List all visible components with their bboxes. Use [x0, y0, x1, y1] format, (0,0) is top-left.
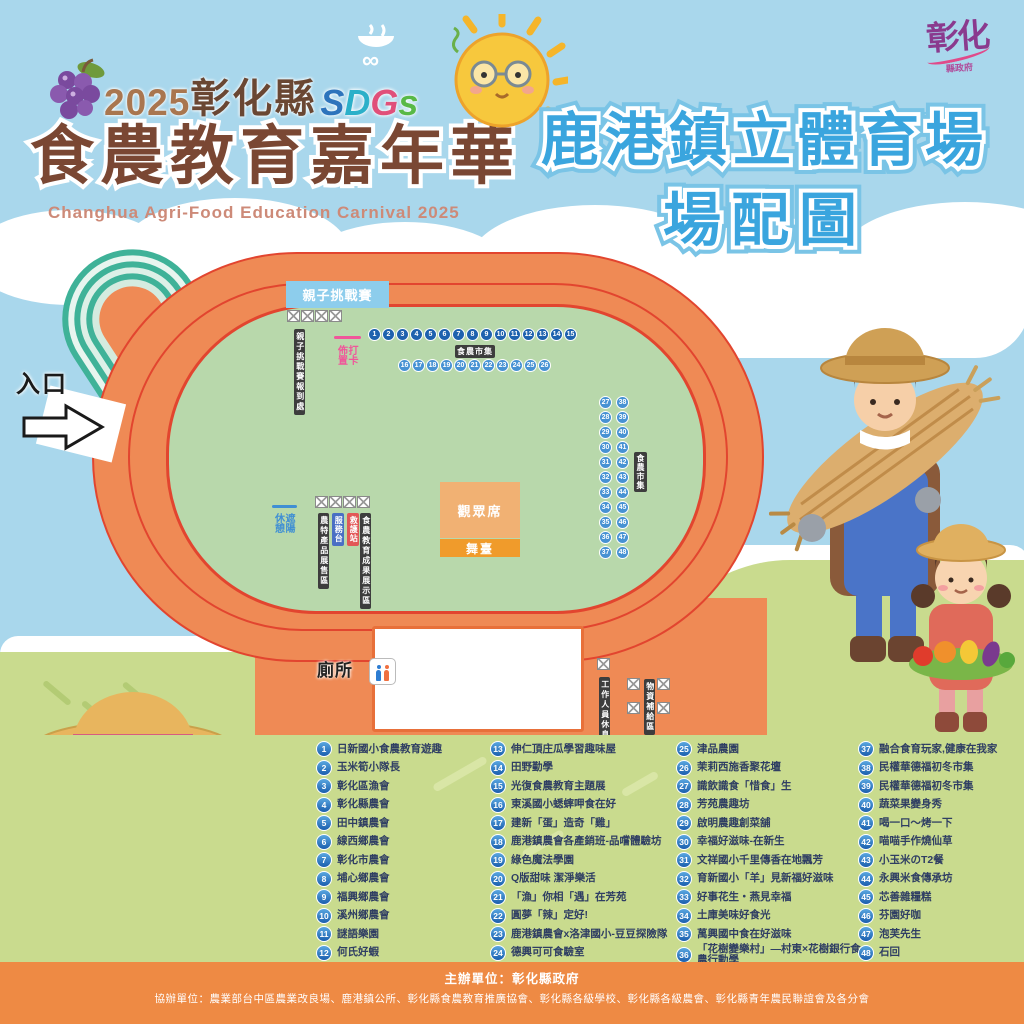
- legend-item-number: 29: [676, 815, 692, 831]
- booth-number: 18: [426, 359, 439, 372]
- legend-item: 14 田野勤學: [490, 759, 676, 778]
- booth-number: 21: [468, 359, 481, 372]
- booth-number: 19: [440, 359, 453, 372]
- booth-number: 31: [599, 456, 612, 469]
- legend-item-label: 溪州鄉農會: [337, 910, 390, 922]
- supply-area-label: 物資補給區: [644, 679, 655, 735]
- legend-item: 6 線西鄉農會: [316, 833, 488, 852]
- legend-item-label: 鹿港鎮農會x洛津國小-豆豆探險隊: [511, 929, 667, 941]
- legend-item-label: 土庫美味好食光: [697, 910, 771, 922]
- legend-item-label: 線西鄉農會: [337, 836, 390, 848]
- legend-item-number: 34: [676, 908, 692, 924]
- legend-item: 22 圓夢「辣」定好!: [490, 907, 676, 926]
- venue-title: 鹿港鎮立體育場 鹿港鎮立體育場 場配圖 場配圖: [505, 92, 1024, 272]
- legend-item: 48 石回: [858, 944, 1020, 963]
- legend-item-number: 6: [316, 834, 332, 850]
- tent-icon: [329, 496, 342, 508]
- legend-item: 45 芯善雜糧糕: [858, 888, 1020, 907]
- booth-number: 15: [564, 328, 577, 341]
- legend-item-number: 46: [858, 908, 874, 924]
- legend-item-label: 啟明農趣創菜舖: [697, 818, 771, 830]
- legend-column-2: 13 伸仁頂庄瓜學習趣味屋 14 田野勤學 15 光復食農教育主題展 16 東溪…: [490, 740, 676, 962]
- legend-item: 19 綠色魔法學園: [490, 851, 676, 870]
- legend-item-number: 23: [490, 926, 506, 942]
- legend-item-number: 12: [316, 945, 332, 961]
- legend-item: 11 謎語樂園: [316, 925, 488, 944]
- legend-item-number: 39: [858, 778, 874, 794]
- legend-item: 4 彰化縣農會: [316, 796, 488, 815]
- legend-item-number: 48: [858, 945, 874, 961]
- legend-item-number: 3: [316, 778, 332, 794]
- legend-item: 18 鹿港鎮農會各產銷班-品嚐體驗坊: [490, 833, 676, 852]
- tent-icon: [357, 496, 370, 508]
- legend-item-number: 40: [858, 797, 874, 813]
- booth-number: 43: [616, 471, 629, 484]
- booth-number: 37: [599, 546, 612, 559]
- legend-item-number: 27: [676, 778, 692, 794]
- legend-item: 10 溪州鄉農會: [316, 907, 488, 926]
- legend-item: 38 民權華德福初冬市集: [858, 759, 1020, 778]
- legend-item: 17 建新「蛋」造奇「雞」: [490, 814, 676, 833]
- legend-item: 43 小玉米のT2餐: [858, 851, 1020, 870]
- booth-number: 44: [616, 486, 629, 499]
- legend-item: 40 蔬菜果變身秀: [858, 796, 1020, 815]
- legend-item-number: 43: [858, 852, 874, 868]
- booth-number: 6: [438, 328, 451, 341]
- tent-icon: [627, 702, 640, 714]
- spectator-seating: 觀眾席: [440, 482, 520, 538]
- legend-item: 29 啟明農趣創菜舖: [676, 814, 862, 833]
- legend-column-3: 25 津品農園 26 茉莉西施香聚花壇 27 識飲識食「惜食」生 28 芳苑農趣…: [676, 740, 862, 967]
- venue-title-line1: 鹿港鎮立體育場: [541, 108, 989, 173]
- legend-item-number: 7: [316, 852, 332, 868]
- legend-item-label: 田中鎮農會: [337, 818, 390, 830]
- legend-item: 31 文祥國小千里傳香在地飄芳: [676, 851, 862, 870]
- legend-item: 26 茉莉西施香聚花壇: [676, 759, 862, 778]
- legend-item-label: Q版甜味 潔淨樂活: [511, 873, 596, 885]
- legend-item: 13 伸仁頂庄瓜學習趣味屋: [490, 740, 676, 759]
- legend-item-label: 喝一口～烤一下: [879, 818, 953, 830]
- legend-item-label: 光復食農教育主題展: [511, 781, 606, 793]
- legend-item: 15 光復食農教育主題展: [490, 777, 676, 796]
- legend-item-number: 18: [490, 834, 506, 850]
- legend-item-number: 35: [676, 926, 692, 942]
- booth-area-label-1: 農特產品展售區: [318, 513, 329, 589]
- booth-number: 46: [616, 516, 629, 529]
- booth-number: 7: [452, 328, 465, 341]
- legend-item-number: 1: [316, 741, 332, 757]
- legend-item-label: 福興鄉農會: [337, 892, 390, 904]
- legend-item-number: 22: [490, 908, 506, 924]
- legend-item-label: 芬園好咖: [879, 910, 921, 922]
- legend-item-label: 「漁」你相「遇」在芳苑: [511, 892, 627, 904]
- tent-icon: [329, 310, 342, 322]
- booth-number: 29: [599, 426, 612, 439]
- legend-item-number: 47: [858, 926, 874, 942]
- restroom-icon: [369, 658, 396, 685]
- legend-item: 21 「漁」你相「遇」在芳苑: [490, 888, 676, 907]
- legend-item-label: 石回: [879, 947, 900, 959]
- legend-item-label: 芳苑農趣坊: [697, 799, 750, 811]
- photo-deco-line-pink: [334, 336, 361, 339]
- legend-item-label: 東溪國小蟋蟀呷食在好: [511, 799, 616, 811]
- booth-number: 48: [616, 546, 629, 559]
- market-label-top: 食農市集: [455, 345, 495, 358]
- tent-icon: [627, 678, 640, 690]
- tent-icon: [315, 496, 328, 508]
- booth-number: 36: [599, 531, 612, 544]
- legend-item-label: 融合食育玩家,健康在我家: [879, 744, 997, 756]
- grandstand-building: [372, 626, 584, 732]
- legend-item-label: 彰化市農會: [337, 855, 390, 867]
- legend-item: 27 識飲識食「惜食」生: [676, 777, 862, 796]
- tent-icon: [597, 658, 610, 670]
- legend-item: 47 泡芙先生: [858, 925, 1020, 944]
- legend-item-number: 16: [490, 797, 506, 813]
- bowl-steam-icon: ∞: [352, 16, 404, 76]
- tent-icon: [657, 702, 670, 714]
- legend-item: 2 玉米筍小隊長: [316, 759, 488, 778]
- legend-item: 34 土庫美味好食光: [676, 907, 862, 926]
- booth-number: 12: [522, 328, 535, 341]
- subtitle-en: Changhua Agri-Food Education Carnival 20…: [48, 203, 460, 223]
- legend-item-number: 31: [676, 852, 692, 868]
- booth-number: 3: [396, 328, 409, 341]
- legend-item: 20 Q版甜味 潔淨樂活: [490, 870, 676, 889]
- booth-number: 27: [599, 396, 612, 409]
- legend-item-label: 識飲識食「惜食」生: [697, 781, 792, 793]
- legend-item-label: 泡芙先生: [879, 929, 921, 941]
- legend-item-number: 37: [858, 741, 874, 757]
- booth-number-col-a: 2728293031323334353637: [599, 396, 612, 559]
- booth-number: 13: [536, 328, 549, 341]
- stage: 舞臺: [440, 539, 520, 557]
- legend-item-label: 芯善雜糧糕: [879, 892, 932, 904]
- tent-icon: [287, 310, 300, 322]
- legend-item-number: 44: [858, 871, 874, 887]
- booth-number: 41: [616, 441, 629, 454]
- legend-item-label: 田野勤學: [511, 762, 553, 774]
- tent-icon: [343, 496, 356, 508]
- booth-number: 16: [398, 359, 411, 372]
- organizer-line: 主辦單位：彰化縣政府: [0, 968, 1024, 987]
- challenge-checkin-label: 親子挑戰賽報到處: [294, 329, 305, 415]
- county-gov-logo: 彰化 縣政府: [916, 19, 999, 76]
- tent-row: [287, 310, 342, 322]
- tent-row: [597, 658, 610, 670]
- legend-item-number: 26: [676, 760, 692, 776]
- legend-item-number: 5: [316, 815, 332, 831]
- legend-item-label: 幸福好滋味-在新生: [697, 836, 785, 848]
- booth-number: 1: [368, 328, 381, 341]
- legend-item-label: 育新國小「羊」見新福好滋味: [697, 873, 834, 885]
- legend-item-label: 建新「蛋」造奇「雞」: [511, 818, 616, 830]
- legend-item: 46 芬園好咖: [858, 907, 1020, 926]
- booth-number: 33: [599, 486, 612, 499]
- legend-item-number: 15: [490, 778, 506, 794]
- booth-number: 4: [410, 328, 423, 341]
- legend-item-number: 24: [490, 945, 506, 961]
- legend-item-number: 30: [676, 834, 692, 850]
- legend-item-label: 謎語樂園: [337, 929, 379, 941]
- legend-item-label: 民權華德福初冬市集: [879, 762, 974, 774]
- legend-item: 12 何氏好蝦: [316, 944, 488, 963]
- legend-item-label: 蔬菜果變身秀: [879, 799, 942, 811]
- booth-number: 47: [616, 531, 629, 544]
- legend-item-number: 19: [490, 852, 506, 868]
- legend-item-label: 津品農園: [697, 744, 739, 756]
- legend-item: 41 喝一口～烤一下: [858, 814, 1020, 833]
- legend-item-number: 10: [316, 908, 332, 924]
- toilet-label: 廁所: [317, 656, 353, 681]
- legend-item-number: 8: [316, 871, 332, 887]
- legend-item-label: 好事花生・燕見幸福: [697, 892, 792, 904]
- photo-deco-label-pink: 打卡佈置: [335, 345, 356, 371]
- legend-item-label: 茉莉西施香聚花壇: [697, 762, 781, 774]
- legend-item-label: 彰化區漁會: [337, 781, 390, 793]
- booth-area-label-2: 食農教育成果展示區: [360, 513, 371, 609]
- legend-item-number: 4: [316, 797, 332, 813]
- booth-number: 17: [412, 359, 425, 372]
- legend-item-label: 彰化縣農會: [337, 799, 390, 811]
- entrance-arrow-icon: [22, 402, 106, 452]
- legend-item: 1 日新國小食農教育遊趣: [316, 740, 488, 759]
- legend-item-label: 永興米食傳承坊: [879, 873, 953, 885]
- booth-number: 5: [424, 328, 437, 341]
- booth-number: 20: [454, 359, 467, 372]
- legend-item-number: 13: [490, 741, 506, 757]
- legend-item: 16 東溪國小蟋蟀呷食在好: [490, 796, 676, 815]
- legend-item-label: 小玉米のT2餐: [879, 855, 944, 867]
- legend-item-number: 14: [490, 760, 506, 776]
- legend-item: 7 彰化市農會: [316, 851, 488, 870]
- booth-number: 45: [616, 501, 629, 514]
- legend-item-label: 何氏好蝦: [337, 947, 379, 959]
- legend-item-number: 17: [490, 815, 506, 831]
- legend-column-1: 1 日新國小食農教育遊趣 2 玉米筍小隊長 3 彰化區漁會 4 彰化縣農會 5 …: [316, 740, 488, 962]
- booth-number: 30: [599, 441, 612, 454]
- entrance-label: 入口: [16, 364, 68, 399]
- booth-number: 42: [616, 456, 629, 469]
- legend-item: 9 福興鄉農會: [316, 888, 488, 907]
- booth-number: 10: [494, 328, 507, 341]
- venue-title-line2: 場配圖: [663, 188, 867, 253]
- booth-number: 32: [599, 471, 612, 484]
- photo-deco-label-blue: 遮陽休憩: [272, 513, 293, 539]
- legend-item: 42 喵喵手作燒仙草: [858, 833, 1020, 852]
- parent-child-challenge-banner: 親子挑戰賽: [286, 281, 389, 308]
- legend-item-number: 2: [316, 760, 332, 776]
- legend-item-label: 喵喵手作燒仙草: [879, 836, 953, 848]
- legend-item: 39 民權華德福初冬市集: [858, 777, 1020, 796]
- legend-item-number: 28: [676, 797, 692, 813]
- legend-item: 3 彰化區漁會: [316, 777, 488, 796]
- legend-item-label: 鹿港鎮農會各產銷班-品嚐體驗坊: [511, 836, 662, 848]
- legend-item-label: 圓夢「辣」定好!: [511, 910, 588, 922]
- tent-icon: [657, 678, 670, 690]
- booth-number: 11: [508, 328, 521, 341]
- legend-item: 28 芳苑農趣坊: [676, 796, 862, 815]
- booth-number: 26: [538, 359, 551, 372]
- legend-item: 25 津品農園: [676, 740, 862, 759]
- booth-number: 22: [482, 359, 495, 372]
- service-desk-banner: 服務台: [332, 513, 344, 546]
- booth-number-row-2: 1617181920212223242526: [398, 359, 551, 372]
- booth-number-col-b: 3839404142434445464748: [616, 396, 629, 559]
- legend-item: 30 幸福好滋味-在新生: [676, 833, 862, 852]
- legend-item-number: 21: [490, 889, 506, 905]
- booth-number: 9: [480, 328, 493, 341]
- legend-item: 33 好事花生・燕見幸福: [676, 888, 862, 907]
- legend-item: 44 永興米食傳承坊: [858, 870, 1020, 889]
- legend-item-label: 伸仁頂庄瓜學習趣味屋: [511, 744, 616, 756]
- booth-number: 34: [599, 501, 612, 514]
- legend-item-label: 德興可可食驗室: [511, 947, 585, 959]
- legend-item-number: 32: [676, 871, 692, 887]
- booth-number: 40: [616, 426, 629, 439]
- legend-item-number: 33: [676, 889, 692, 905]
- farm-girl-illustration: [893, 512, 1024, 740]
- legend-item-label: 綠色魔法學園: [511, 855, 574, 867]
- booth-number: 14: [550, 328, 563, 341]
- legend-item: 23 鹿港鎮農會x洛津國小-豆豆探險隊: [490, 925, 676, 944]
- tent-icon: [301, 310, 314, 322]
- booth-number: 39: [616, 411, 629, 424]
- booth-number: 23: [496, 359, 509, 372]
- legend-item: 5 田中鎮農會: [316, 814, 488, 833]
- booth-number: 2: [382, 328, 395, 341]
- tent-icon: [315, 310, 328, 322]
- booth-number: 35: [599, 516, 612, 529]
- legend-item: 8 埔心鄉農會: [316, 870, 488, 889]
- legend-item-label: 玉米筍小隊長: [337, 762, 400, 774]
- footer: 主辦單位：彰化縣政府 協辦單位：農業部台中區農業改良場、鹿港鎮公所、彰化縣食農教…: [0, 962, 1024, 1024]
- event-site-map-poster: 入口 親子挑戰賽 親子挑戰賽報到處 打卡佈置 12345678910111213…: [0, 0, 1024, 1024]
- legend-item-number: 41: [858, 815, 874, 831]
- legend-item: 35 萬興國中食在好滋味: [676, 925, 862, 944]
- legend-item-number: 11: [316, 926, 332, 942]
- legend-item-label: 日新國小食農教育遊趣: [337, 744, 442, 756]
- first-aid-banner: 救護站: [347, 513, 359, 546]
- legend-column-4: 37 融合食育玩家,健康在我家 38 民權華德福初冬市集 39 民權華德福初冬市…: [858, 740, 1020, 962]
- booth-number: 24: [510, 359, 523, 372]
- tent-row: [315, 496, 370, 508]
- market-label-right: 食農市集: [634, 452, 647, 492]
- svg-text:∞: ∞: [362, 47, 379, 74]
- booth-number: 25: [524, 359, 537, 372]
- photo-deco-line-blue: [272, 505, 297, 508]
- legend-item-number: 45: [858, 889, 874, 905]
- booth-number: 38: [616, 396, 629, 409]
- co-organizer-line: 協辦單位：農業部台中區農業改良場、鹿港鎮公所、彰化縣食農教育推廣協會、彰化縣各級…: [0, 991, 1024, 1006]
- legend-item: 24 德興可可食驗室: [490, 944, 676, 963]
- legend-item: 32 育新國小「羊」見新福好滋味: [676, 870, 862, 889]
- legend-item-number: 42: [858, 834, 874, 850]
- booth-number: 8: [466, 328, 479, 341]
- legend-item: 37 融合食育玩家,健康在我家: [858, 740, 1020, 759]
- legend-item-number: 36: [676, 947, 692, 963]
- legend-item-label: 萬興國中食在好滋味: [697, 929, 792, 941]
- legend-item-number: 20: [490, 871, 506, 887]
- legend-item-number: 38: [858, 760, 874, 776]
- booth-number: 28: [599, 411, 612, 424]
- legend-item-label: 文祥國小千里傳香在地飄芳: [697, 855, 823, 867]
- legend-item-label: 埔心鄉農會: [337, 873, 390, 885]
- booth-number-row-1: 123456789101112131415: [368, 328, 577, 341]
- legend-item-number: 9: [316, 889, 332, 905]
- legend-item-label: 民權華德福初冬市集: [879, 781, 974, 793]
- legend-item-number: 25: [676, 741, 692, 757]
